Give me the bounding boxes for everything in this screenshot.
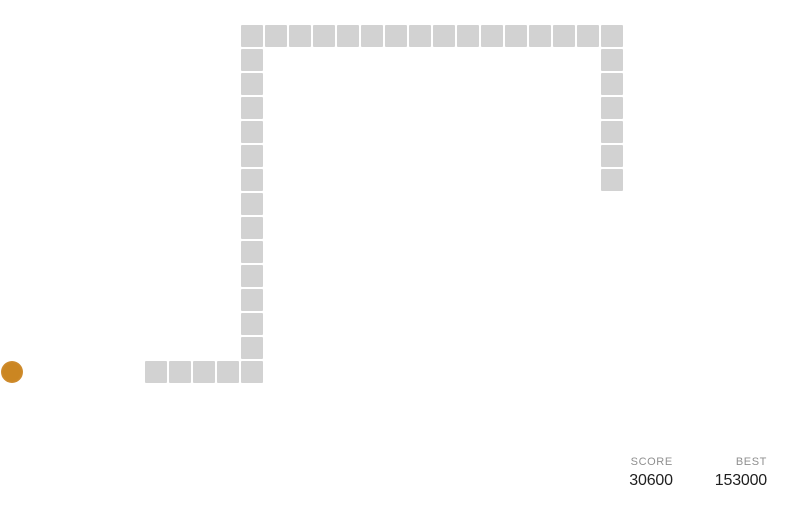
snake-segment — [241, 25, 263, 47]
snake-segment — [577, 25, 599, 47]
score-hud: SCORE 30600 BEST 153000 — [629, 456, 767, 490]
snake-segment — [241, 361, 263, 383]
game-viewport: SCORE 30600 BEST 153000 — [0, 0, 794, 520]
snake-segment — [457, 25, 479, 47]
snake-segment — [193, 361, 215, 383]
snake-segment — [289, 25, 311, 47]
snake-segment — [481, 25, 503, 47]
snake-segment — [361, 25, 383, 47]
snake-segment — [529, 25, 551, 47]
snake-segment — [241, 97, 263, 119]
snake-segment — [241, 337, 263, 359]
score-stat: SCORE 30600 — [629, 456, 673, 490]
snake-segment — [433, 25, 455, 47]
snake-segment — [145, 361, 167, 383]
snake-segment — [241, 313, 263, 335]
snake-segment — [241, 121, 263, 143]
best-stat: BEST 153000 — [715, 456, 767, 490]
snake-segment — [241, 289, 263, 311]
snake-segment — [505, 25, 527, 47]
snake-segment — [385, 25, 407, 47]
snake-segment — [601, 145, 623, 167]
snake-segment — [241, 49, 263, 71]
best-label: BEST — [715, 456, 767, 469]
snake-segment — [313, 25, 335, 47]
snake-game-board[interactable] — [0, 0, 794, 520]
snake-segment — [601, 97, 623, 119]
snake-segment — [601, 49, 623, 71]
best-value: 153000 — [715, 472, 767, 490]
snake-segment — [553, 25, 575, 47]
snake-segment — [601, 121, 623, 143]
score-value: 30600 — [629, 472, 673, 490]
snake-segment — [241, 265, 263, 287]
snake-segment — [241, 241, 263, 263]
snake-segment — [601, 169, 623, 191]
snake-segment — [241, 73, 263, 95]
score-label: SCORE — [629, 456, 673, 469]
snake-segment — [601, 73, 623, 95]
snake-segment — [217, 361, 239, 383]
snake-segment — [409, 25, 431, 47]
snake-segment — [601, 25, 623, 47]
snake-segment — [241, 217, 263, 239]
food-dot — [1, 361, 23, 383]
snake-segment — [169, 361, 191, 383]
snake-segment — [337, 25, 359, 47]
snake-segment — [241, 169, 263, 191]
snake-segment — [241, 145, 263, 167]
snake-segment — [241, 193, 263, 215]
snake-segment — [265, 25, 287, 47]
